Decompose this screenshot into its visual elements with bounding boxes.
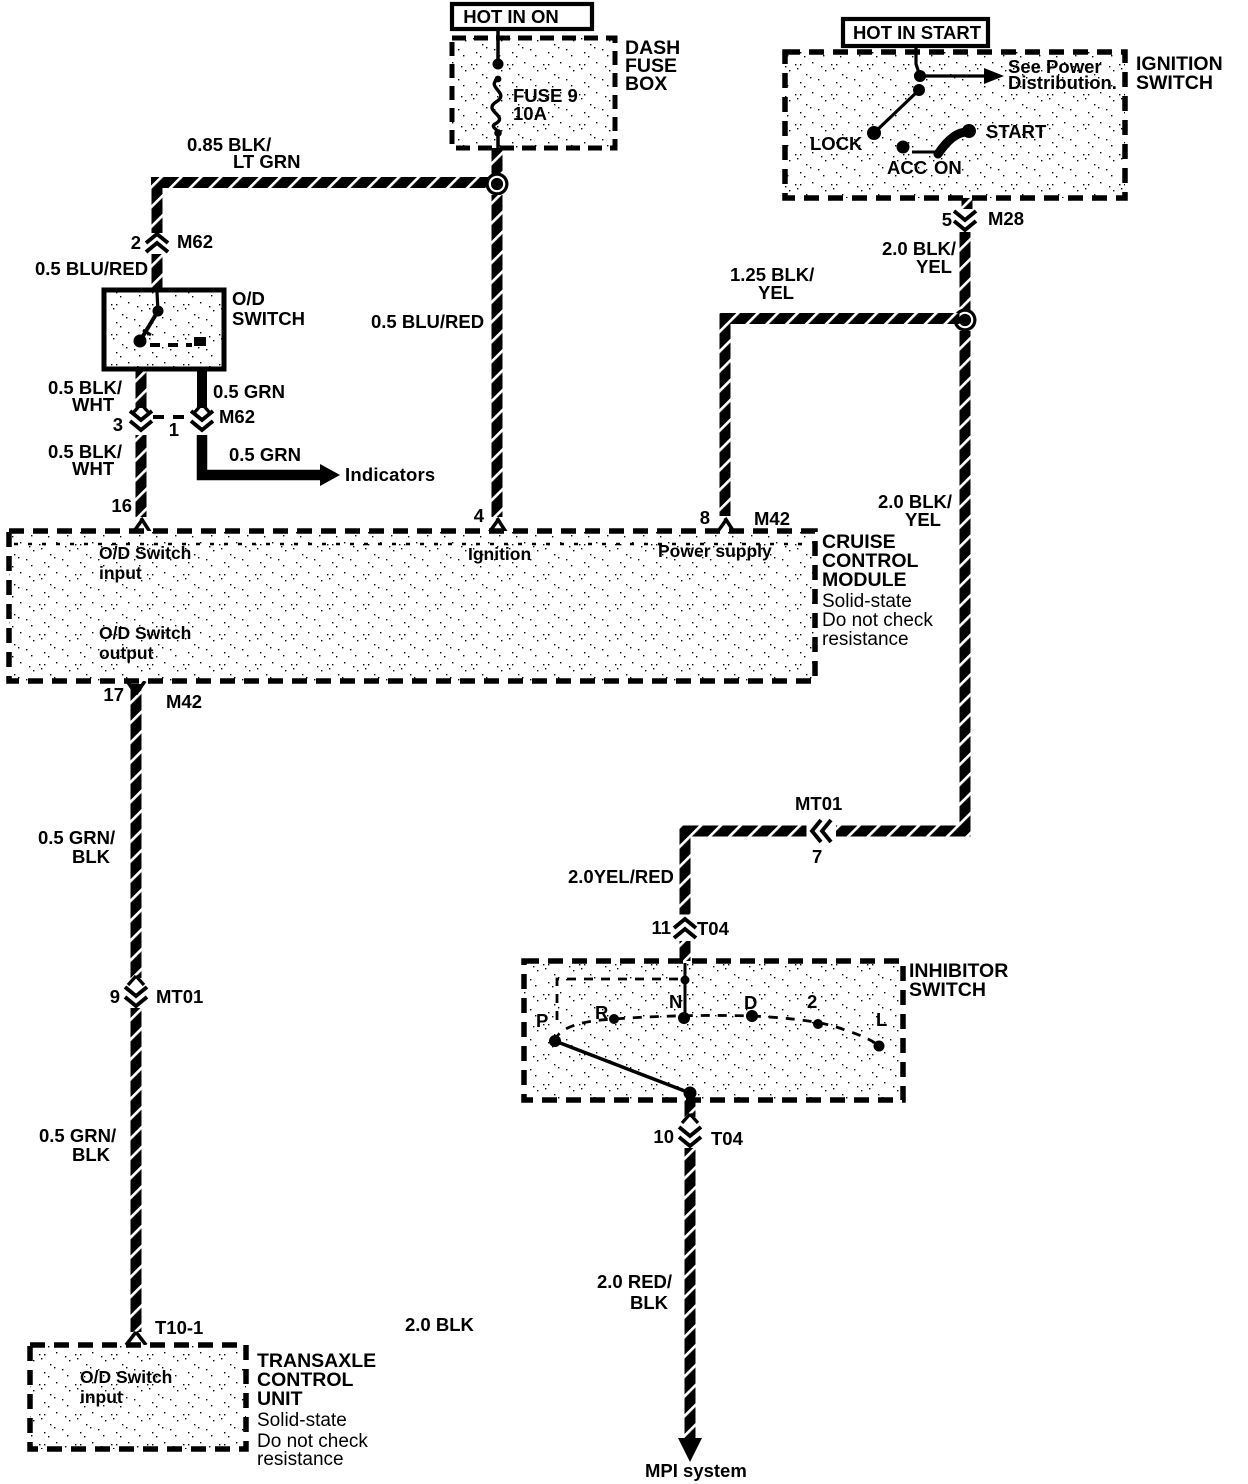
- svg-text:M42: M42: [166, 691, 202, 712]
- svg-text:O/D Switch: O/D Switch: [99, 623, 191, 643]
- svg-text:MT01: MT01: [156, 986, 203, 1007]
- svg-text:resistance: resistance: [822, 629, 909, 650]
- svg-text:Do not check: Do not check: [822, 610, 933, 631]
- svg-text:HOT IN ON: HOT IN ON: [463, 6, 559, 27]
- svg-text:N: N: [669, 991, 682, 1012]
- svg-text:10A: 10A: [513, 103, 547, 124]
- svg-text:M62: M62: [177, 231, 213, 252]
- svg-text:MODULE: MODULE: [822, 569, 907, 591]
- svg-text:HOT IN START: HOT IN START: [853, 22, 982, 43]
- svg-text:8: 8: [700, 507, 710, 528]
- svg-text:T04: T04: [697, 918, 730, 939]
- svg-text:2: 2: [131, 232, 141, 253]
- svg-text:BLK: BLK: [72, 1144, 111, 1165]
- svg-text:YEL: YEL: [905, 509, 941, 530]
- svg-text:17: 17: [103, 684, 124, 705]
- svg-text:SWITCH: SWITCH: [232, 308, 305, 329]
- svg-text:BLK: BLK: [72, 846, 111, 867]
- svg-text:Power supply: Power supply: [658, 541, 772, 561]
- svg-text:T10-1: T10-1: [155, 1317, 203, 1338]
- svg-text:O/D Switch: O/D Switch: [99, 543, 191, 563]
- svg-text:YEL: YEL: [916, 256, 952, 277]
- svg-text:WHT: WHT: [72, 458, 115, 479]
- svg-text:T04: T04: [711, 1128, 744, 1149]
- svg-text:WHT: WHT: [72, 394, 115, 415]
- svg-text:Indicators: Indicators: [345, 464, 435, 485]
- svg-text:input: input: [80, 1387, 123, 1407]
- svg-text:O/D Switch: O/D Switch: [80, 1367, 172, 1387]
- svg-text:2.0 BLK: 2.0 BLK: [405, 1314, 475, 1335]
- svg-text:START: START: [986, 121, 1047, 142]
- svg-text:M28: M28: [988, 208, 1024, 229]
- svg-text:0.5 GRN: 0.5 GRN: [229, 444, 301, 465]
- svg-text:1: 1: [169, 419, 179, 440]
- svg-text:2.0YEL/RED: 2.0YEL/RED: [568, 866, 674, 887]
- svg-text:input: input: [99, 563, 142, 583]
- svg-text:ACC: ACC: [887, 157, 927, 178]
- svg-text:LT GRN: LT GRN: [233, 151, 300, 172]
- svg-text:10: 10: [653, 1126, 674, 1147]
- svg-text:BLK: BLK: [630, 1292, 669, 1313]
- svg-text:MPI system: MPI system: [645, 1460, 747, 1481]
- svg-text:resistance: resistance: [257, 1449, 344, 1470]
- svg-text:Ignition: Ignition: [468, 544, 531, 564]
- svg-text:16: 16: [111, 495, 132, 516]
- svg-text:LOCK: LOCK: [810, 133, 863, 154]
- svg-text:11: 11: [651, 917, 671, 938]
- svg-text:Solid-state: Solid-state: [822, 591, 912, 612]
- svg-text:0.5 GRN/: 0.5 GRN/: [39, 1125, 116, 1146]
- svg-text:output: output: [99, 643, 154, 663]
- svg-text:7: 7: [812, 846, 822, 867]
- svg-text:R: R: [595, 1002, 608, 1023]
- svg-text:0.5 BLU/RED: 0.5 BLU/RED: [371, 311, 484, 332]
- svg-text:9: 9: [110, 986, 120, 1007]
- svg-text:UNIT: UNIT: [257, 1388, 303, 1410]
- svg-text:O/D: O/D: [232, 288, 265, 309]
- svg-text:3: 3: [113, 414, 123, 435]
- svg-text:ON: ON: [934, 157, 962, 178]
- svg-text:SWITCH: SWITCH: [909, 979, 986, 1001]
- svg-text:0.5 BLU/RED: 0.5 BLU/RED: [35, 258, 148, 279]
- svg-text:2.0 RED/: 2.0 RED/: [597, 1271, 672, 1292]
- svg-text:L: L: [876, 1009, 887, 1030]
- svg-text:D: D: [744, 992, 757, 1013]
- svg-text:M62: M62: [219, 406, 255, 427]
- svg-text:Solid-state: Solid-state: [257, 1410, 347, 1431]
- svg-text:0.5 GRN/: 0.5 GRN/: [38, 827, 115, 848]
- svg-text:4: 4: [474, 505, 485, 526]
- svg-text:BOX: BOX: [625, 73, 667, 95]
- svg-text:SWITCH: SWITCH: [1136, 72, 1213, 94]
- svg-text:YEL: YEL: [758, 282, 794, 303]
- svg-text:P: P: [536, 1010, 548, 1031]
- svg-text:Distribution.: Distribution.: [1008, 72, 1117, 93]
- svg-text:MT01: MT01: [795, 793, 842, 814]
- svg-text:2: 2: [807, 991, 817, 1012]
- svg-text:0.5 GRN: 0.5 GRN: [213, 381, 285, 402]
- svg-text:5: 5: [942, 209, 952, 230]
- svg-text:M42: M42: [754, 508, 790, 529]
